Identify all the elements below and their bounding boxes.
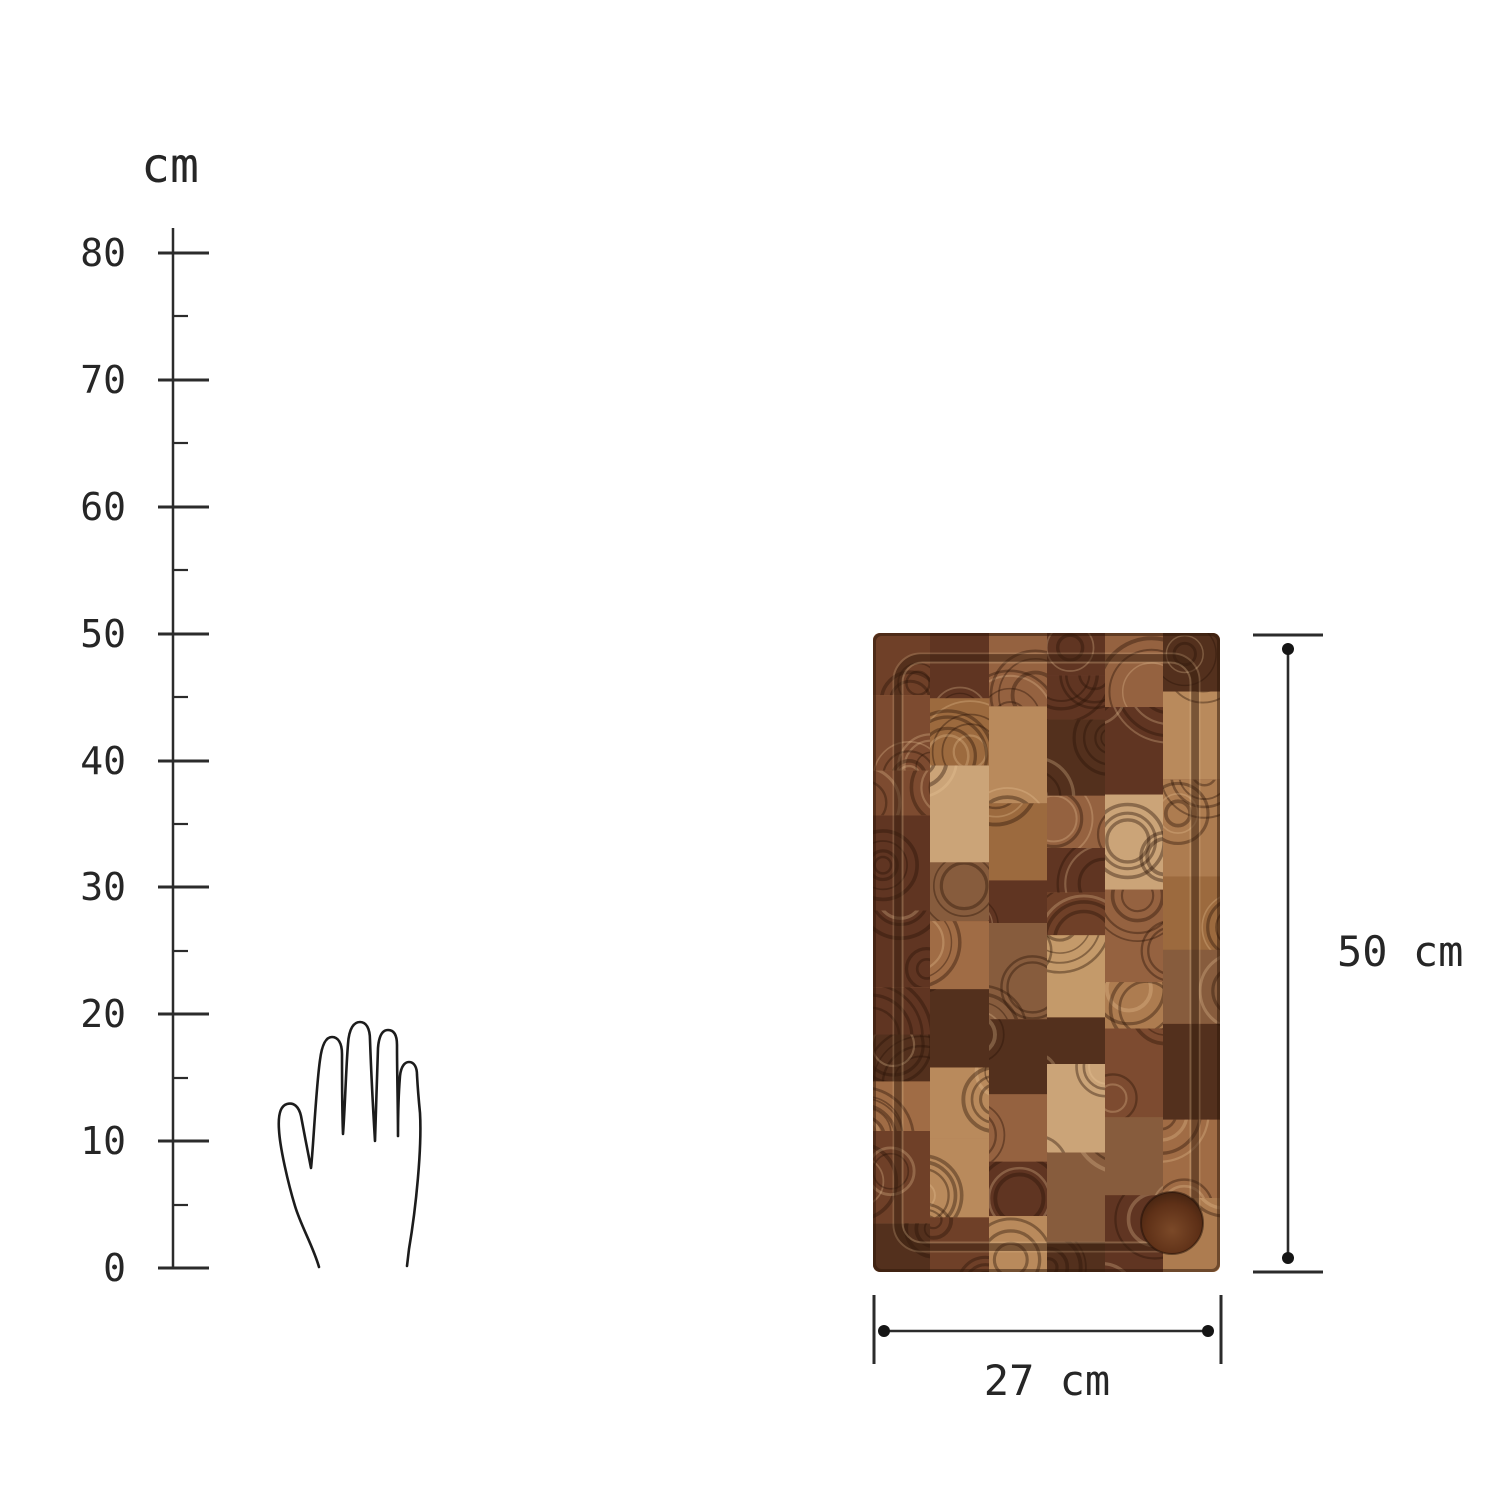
height-dimension-label: 50 cm xyxy=(1337,927,1463,976)
ruler-tick-label: 60 xyxy=(80,485,126,529)
sauce-recess-well xyxy=(1141,1192,1203,1254)
ruler-tick-label: 30 xyxy=(80,865,126,909)
hand-outline-icon xyxy=(279,1022,421,1267)
hand-scale-reference xyxy=(279,1022,421,1267)
ruler-tick-label: 40 xyxy=(80,739,126,783)
ruler-tick-label: 20 xyxy=(80,992,126,1036)
width-dimension-right-dot xyxy=(1202,1325,1214,1337)
ruler-scale: 01020304050607080 xyxy=(80,228,209,1290)
height-dimension-top-dot xyxy=(1282,643,1294,655)
product-dimension-figure: 01020304050607080 cm 50 cm 27 cm xyxy=(0,0,1500,1500)
width-dimension-annotation: 27 cm xyxy=(874,1295,1221,1405)
wood-block xyxy=(1163,876,1271,961)
height-dimension-annotation: 50 cm xyxy=(1253,635,1463,1272)
ruler-tick-label: 10 xyxy=(80,1119,126,1163)
ruler-tick-label: 70 xyxy=(80,358,126,402)
ruler-tick-label: 50 xyxy=(80,612,126,656)
wood-block xyxy=(1047,624,1105,675)
ruler-tick-label: 0 xyxy=(103,1246,126,1290)
wood-block xyxy=(849,815,930,910)
ruler-unit-label: cm xyxy=(141,138,199,194)
height-dimension-bottom-dot xyxy=(1282,1252,1294,1264)
end-grain-wood-pattern xyxy=(809,623,1275,1331)
ruler-tick-label: 80 xyxy=(80,231,126,275)
width-dimension-label: 27 cm xyxy=(984,1356,1110,1405)
cutting-board-image xyxy=(809,623,1275,1331)
width-dimension-left-dot xyxy=(878,1325,890,1337)
